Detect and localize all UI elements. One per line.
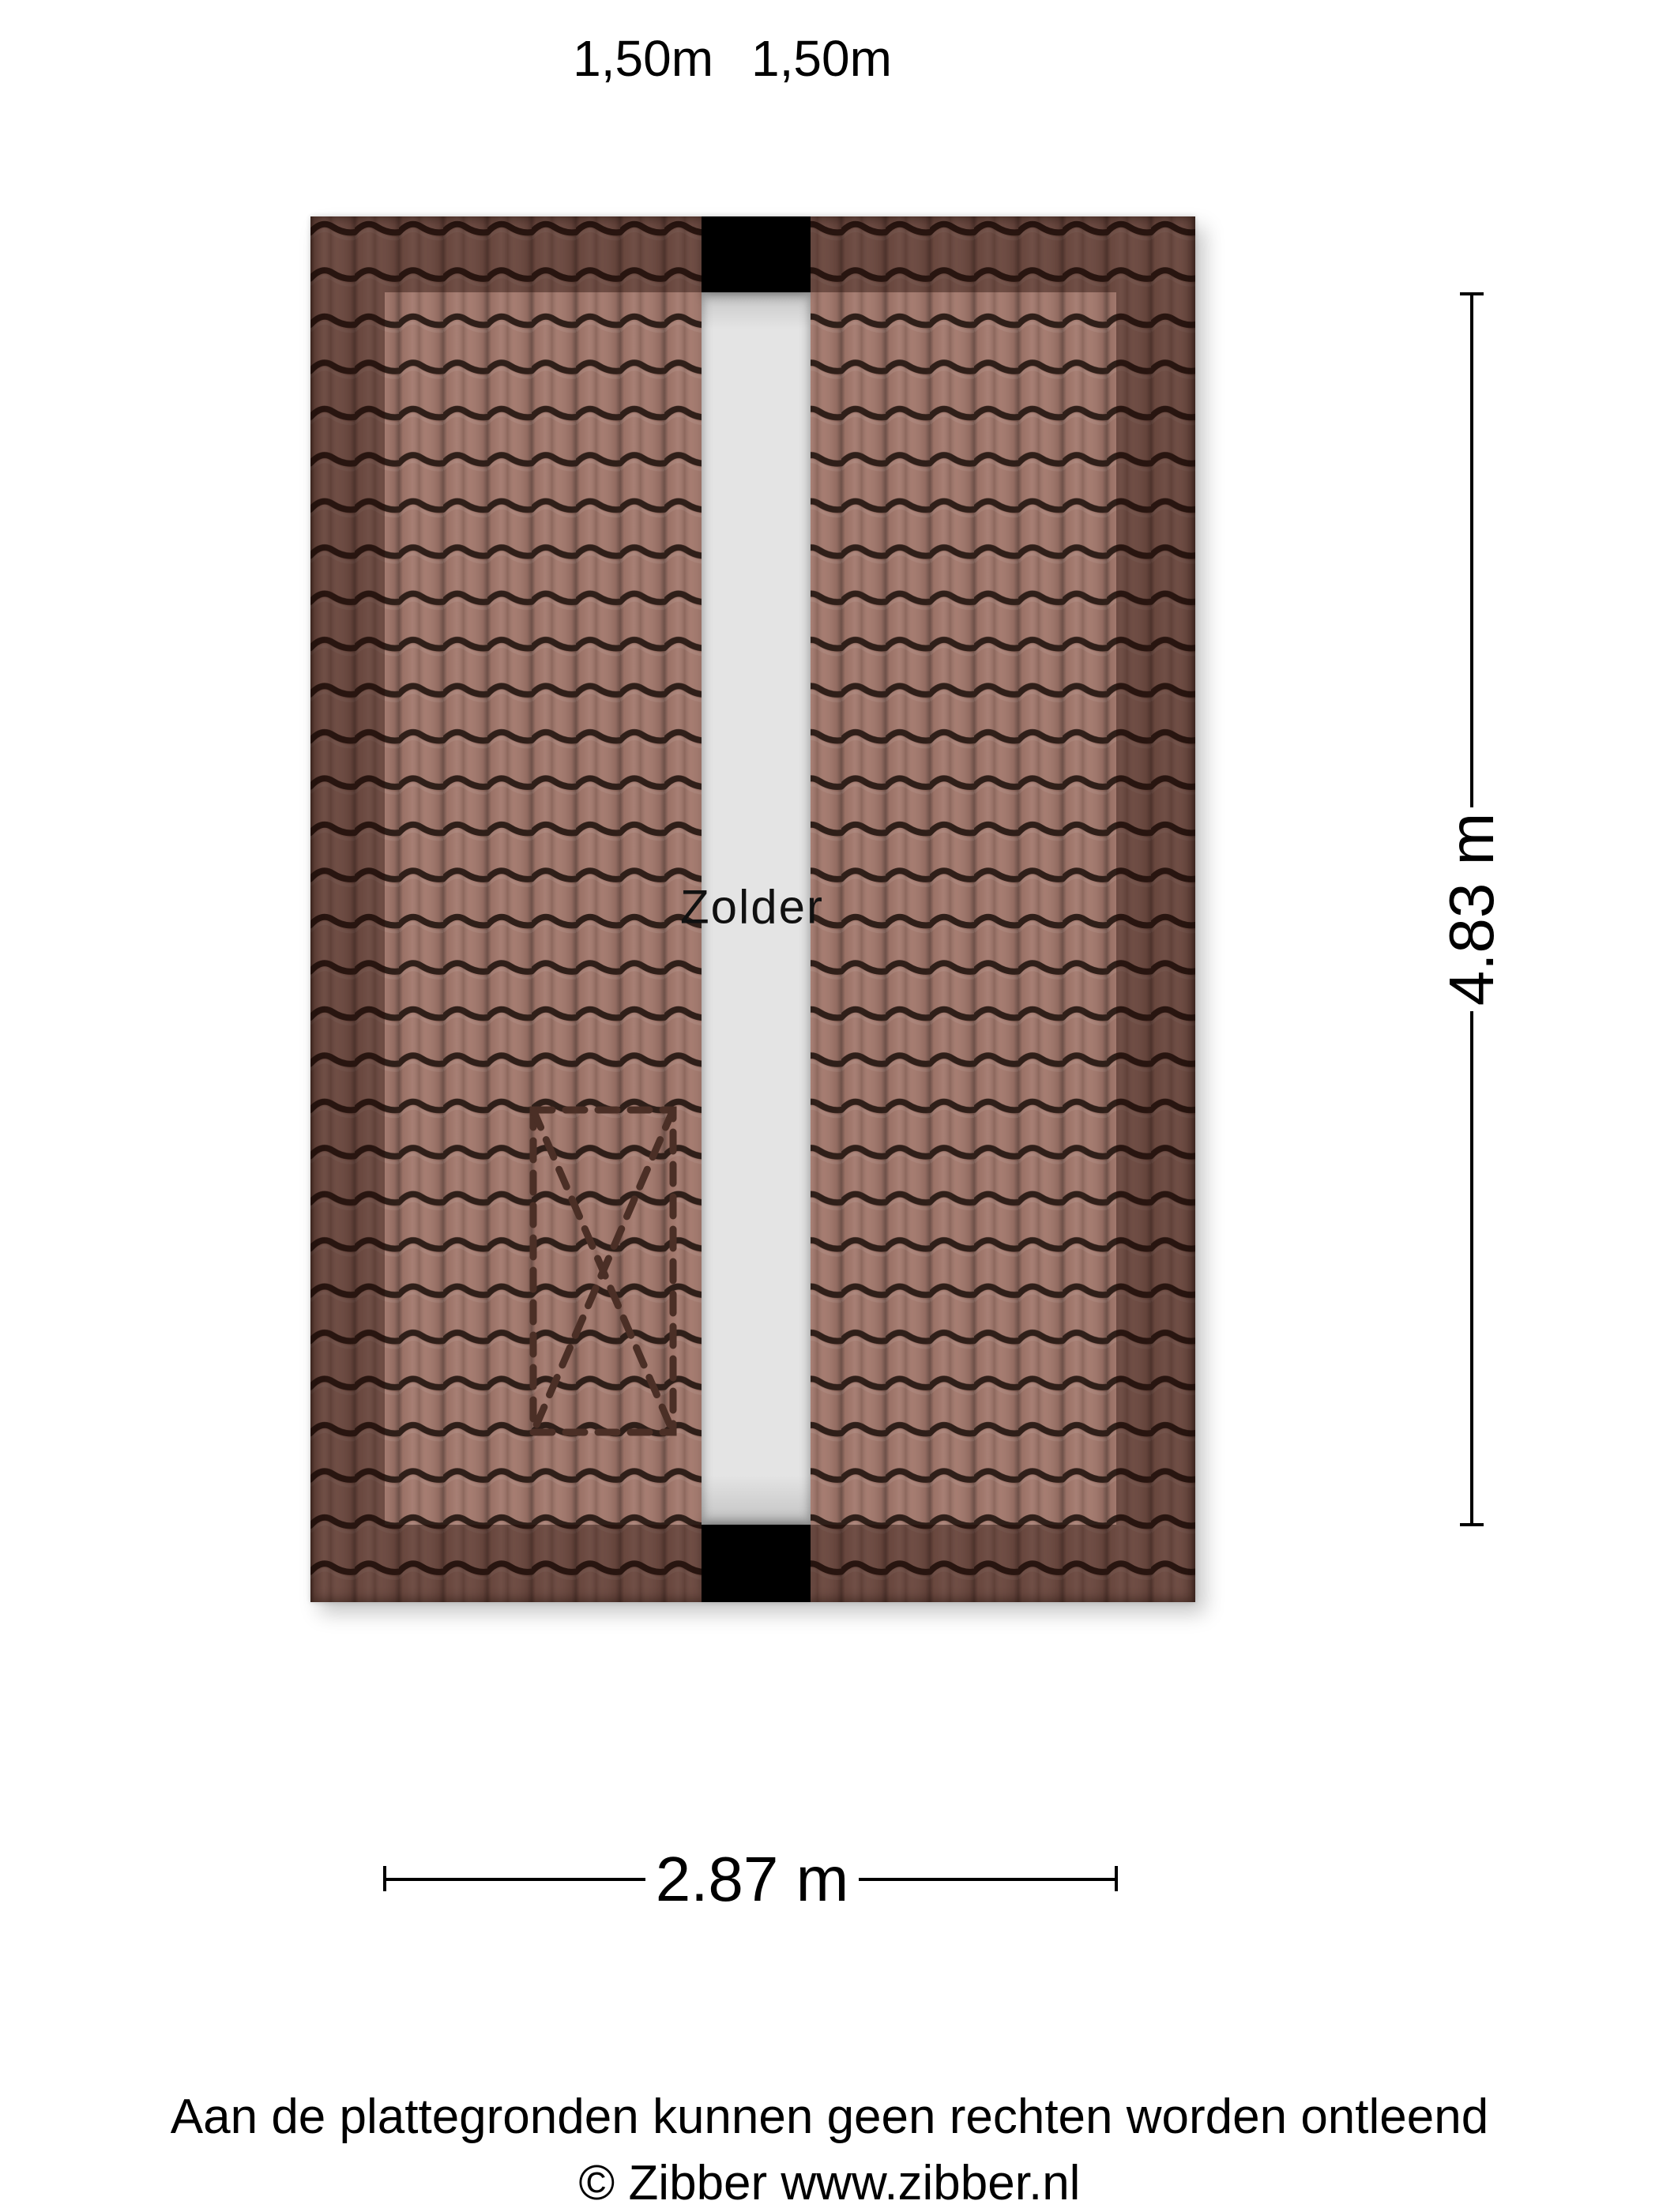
headroom-label-right: 1,50m [751,30,892,88]
roof-opening-top [702,216,811,292]
vertical-dimension-line-upper [1470,294,1473,807]
horizontal-dimension-line-right [859,1878,1116,1881]
disclaimer-text: Aan de plattegronden kunnen geen rechten… [0,2084,1659,2150]
horizontal-dimension-label: 2.87 m [656,1843,849,1916]
room-label: Zolder [680,880,824,935]
floorplan-canvas: 1,50m 1,50m [0,0,1659,2212]
stairs-opening-dashed [529,1106,677,1436]
vertical-dimension-tick-bottom [1460,1523,1484,1526]
headroom-labels: 1,50m 1,50m [573,30,892,88]
footer: Aan de plattegronden kunnen geen rechten… [0,2084,1659,2212]
horizontal-dimension-line-left [385,1878,645,1881]
vertical-dimension-line-lower [1470,1011,1473,1525]
roof-opening-bottom [702,1525,811,1602]
horizontal-dimension-tick-right [1115,1866,1118,1891]
roof-edge-band-right [1116,292,1195,1525]
vertical-dimension-label: 4.83 m [1435,813,1508,1006]
roof-edge-band-left [310,292,385,1525]
roof-plan: Zolder [310,216,1195,1602]
headroom-label-left: 1,50m [573,30,713,88]
copyright-text: © Zibber www.zibber.nl [0,2150,1659,2212]
